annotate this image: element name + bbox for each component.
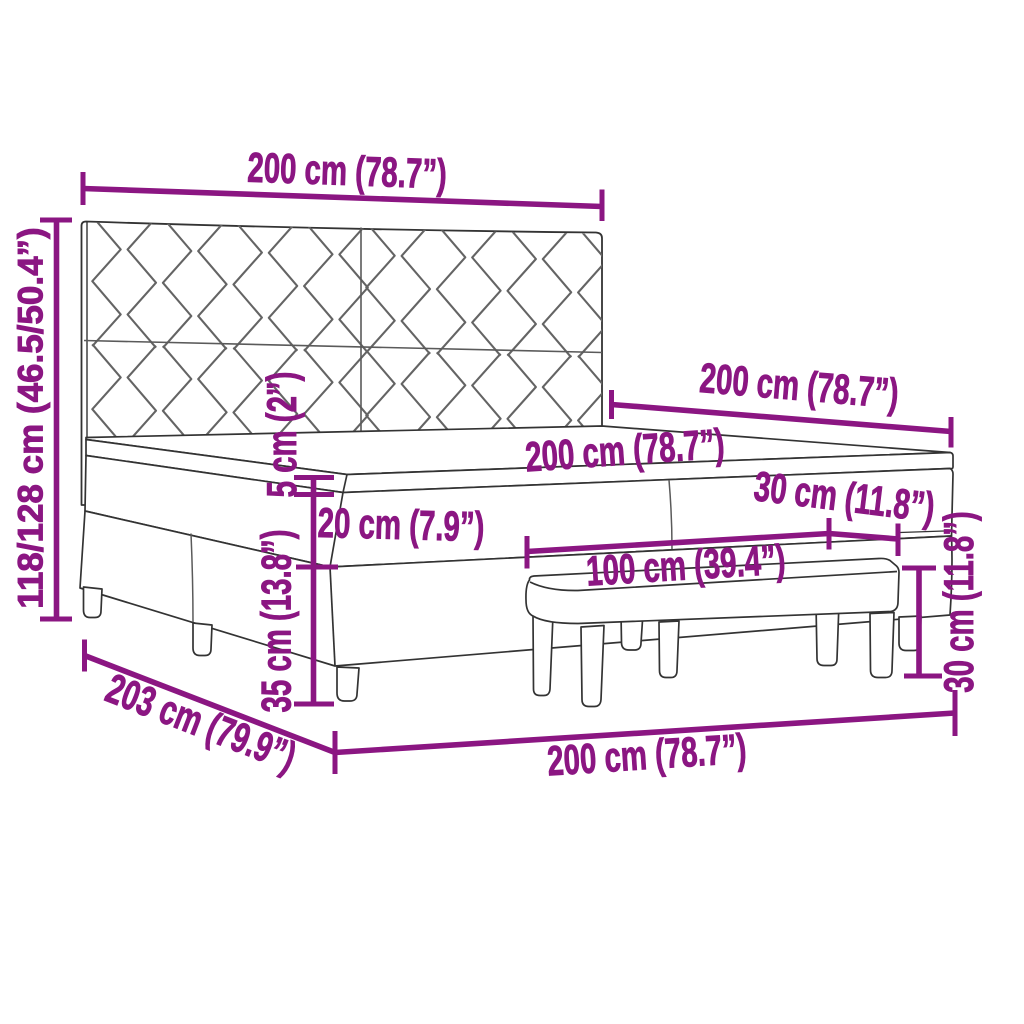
svg-text:118/128 cm (46.5/50.4”): 118/128 cm (46.5/50.4”)	[11, 227, 50, 608]
svg-text:200 cm (78.7”): 200 cm (78.7”)	[247, 143, 448, 197]
svg-text:30 cm (11.8”): 30 cm (11.8”)	[935, 511, 983, 692]
svg-text:35 cm (13.8”): 35 cm (13.8”)	[252, 529, 300, 712]
svg-text:5 cm (2”): 5 cm (2”)	[258, 372, 306, 498]
svg-text:20 cm (7.9”): 20 cm (7.9”)	[317, 499, 485, 551]
